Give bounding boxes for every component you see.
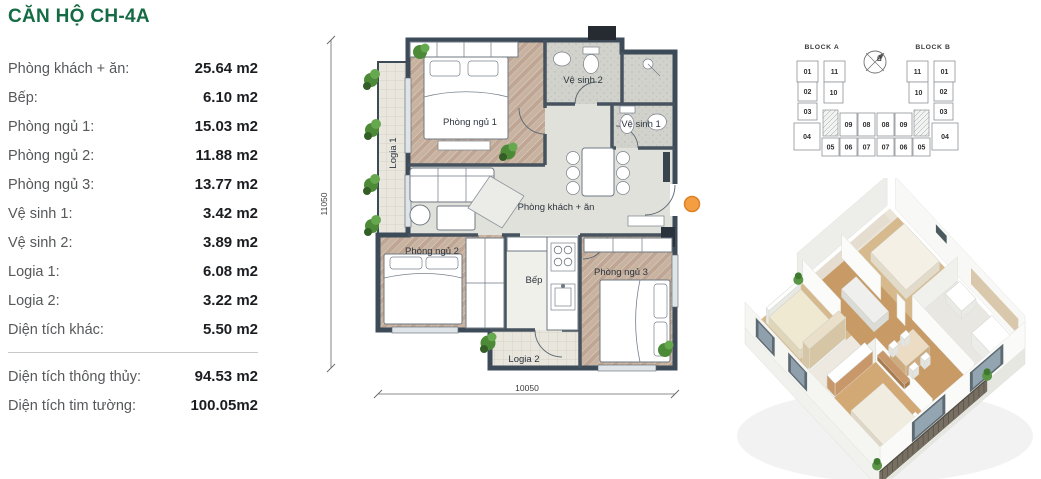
label-logia2: Logia 2 (508, 354, 539, 365)
kitchen-counter-top (507, 237, 547, 251)
svg-text:06: 06 (900, 145, 908, 152)
area-value: 5.50 m2 (203, 321, 258, 338)
dining-chair (567, 152, 580, 165)
core-b (914, 110, 929, 136)
svg-text:06: 06 (845, 145, 853, 152)
block-b-units: 11 01 10 02 03 08 09 04 07 06 05 (877, 61, 958, 156)
area-value: 15.03 m2 (195, 118, 258, 135)
pouf (410, 205, 430, 225)
svg-text:11: 11 (914, 69, 922, 76)
dining-chair (617, 167, 630, 180)
area-label: Phòng ngủ 2: (8, 148, 94, 164)
pillow (390, 257, 422, 269)
svg-text:02: 02 (940, 89, 948, 96)
area-value: 3.42 m2 (203, 205, 258, 222)
area-row-bedroom2: Phòng ngủ 2:11.88 m2 (8, 141, 258, 170)
dimension-height: 11050 (319, 36, 335, 372)
svg-text:09: 09 (845, 122, 853, 129)
area-row-kitchen: Bếp:6.10 m2 (8, 83, 258, 112)
area-value: 25.64 m2 (195, 60, 258, 77)
total-row-gross: Diện tích tim tường:100.05m2 (8, 391, 258, 420)
shaft-block (588, 26, 616, 40)
block-b-label: BLOCK B (915, 44, 950, 51)
label-wc2: Vệ sinh 2 (563, 75, 603, 86)
wc2-sink (554, 52, 571, 66)
label-logia1: Logia 1 (388, 137, 399, 168)
svg-text:05: 05 (918, 145, 926, 152)
label-wc1: Vệ sinh 1 (621, 119, 661, 130)
svg-text:01: 01 (804, 69, 812, 76)
area-value: 6.08 m2 (203, 263, 258, 280)
wardrobe-bedroom3 (584, 238, 672, 252)
block-a-label: BLOCK A (805, 44, 840, 51)
area-row-other: Diện tích khác:5.50 m2 (8, 315, 258, 344)
shoe-cabinet (628, 216, 664, 226)
svg-text:04: 04 (941, 134, 949, 141)
area-list: Phòng khách + ăn:25.64 m2 Bếp:6.10 m2 Ph… (8, 54, 258, 344)
svg-text:08: 08 (882, 122, 890, 129)
svg-text:07: 07 (863, 145, 871, 152)
area-label: Diện tích khác: (8, 322, 104, 338)
area-label: Phòng ngủ 1: (8, 119, 94, 135)
total-value: 100.05m2 (190, 397, 258, 414)
faucet (561, 284, 565, 288)
svg-text:08: 08 (863, 122, 871, 129)
bed1-bench (438, 141, 490, 150)
pillow (654, 284, 667, 318)
svg-text:04: 04 (803, 134, 811, 141)
total-label: Diện tích thông thủy: (8, 369, 141, 385)
svg-text:10050: 10050 (515, 383, 539, 393)
svg-text:10: 10 (830, 90, 838, 97)
area-row-logia1: Logia 1:6.08 m2 (8, 257, 258, 286)
wc2-toilet (584, 55, 599, 74)
pillow (468, 61, 498, 76)
label-bedroom3: Phòng ngủ 3 (594, 267, 648, 278)
dining-chair (567, 167, 580, 180)
area-value: 13.77 m2 (195, 176, 258, 193)
svg-text:11050: 11050 (319, 192, 329, 215)
svg-text:07: 07 (882, 145, 890, 152)
entry-marker (685, 197, 700, 212)
wc2-toilet-tank (583, 47, 599, 54)
svg-text:01: 01 (941, 69, 949, 76)
svg-text:05: 05 (827, 145, 835, 152)
area-label: Phòng khách + ăn: (8, 61, 129, 77)
pillow (430, 61, 460, 76)
apartment-detail-page: CĂN HỘ CH-4A Phòng khách + ăn:25.64 m2 B… (0, 0, 1041, 479)
block-a-units: 01 11 02 10 03 04 09 08 05 06 07 (794, 61, 875, 156)
window-bedroom3-side (672, 255, 678, 307)
area-value: 11.88 m2 (195, 147, 258, 164)
area-row-wc2: Vệ sinh 2:3.89 m2 (8, 228, 258, 257)
window-bedroom1 (405, 78, 411, 153)
area-totals: Diện tích thông thủy:94.53 m2 Diện tích … (8, 362, 258, 420)
wc1-toilet-tank (620, 106, 635, 113)
area-label: Logia 1: (8, 264, 60, 280)
total-row-carpet: Diện tích thông thủy:94.53 m2 (8, 362, 258, 391)
dining-chair (567, 182, 580, 195)
block-key-plan: BLOCK A BLOCK B B 01 11 02 10 03 04 09 0… (775, 36, 975, 168)
area-row-bedroom3: Phòng ngủ 3:13.77 m2 (8, 170, 258, 199)
area-label: Logia 2: (8, 293, 60, 309)
dining-chair (617, 182, 630, 195)
area-label: Vệ sinh 1: (8, 206, 73, 222)
svg-text:03: 03 (940, 109, 948, 116)
area-label: Phòng ngủ 3: (8, 177, 94, 193)
area-value: 3.22 m2 (203, 292, 258, 309)
svg-text:03: 03 (804, 109, 812, 116)
dining-chair (617, 152, 630, 165)
area-row-living: Phòng khách + ăn:25.64 m2 (8, 54, 258, 83)
svg-text:02: 02 (804, 89, 812, 96)
page-title: CĂN HỘ CH-4A (8, 6, 150, 28)
svg-text:10: 10 (915, 90, 923, 97)
svg-text:11: 11 (831, 69, 839, 76)
area-label: Vệ sinh 2: (8, 235, 73, 251)
window-bedroom2 (392, 327, 458, 333)
core-a (823, 110, 838, 136)
entry-gap (670, 184, 681, 216)
label-living: Phòng khách + ăn (518, 202, 595, 213)
label-bedroom2: Phòng ngủ 2 (405, 246, 459, 257)
tv-unit (663, 152, 670, 182)
total-label: Diện tích tim tường: (8, 398, 136, 414)
area-row-bedroom1: Phòng ngủ 1:15.03 m2 (8, 112, 258, 141)
coffee-table (437, 206, 475, 230)
area-row-wc1: Vệ sinh 1:3.42 m2 (8, 199, 258, 228)
total-value: 94.53 m2 (195, 368, 258, 385)
label-bedroom1: Phòng ngủ 1 (443, 117, 497, 128)
floor-plan: Phòng ngủ 1 Vệ sinh 2 Vệ sinh 1 Phòng kh… (312, 20, 717, 404)
dimension-width: 10050 (374, 383, 679, 398)
area-value: 6.10 m2 (203, 89, 258, 106)
pillow (426, 257, 458, 269)
dining-table (582, 148, 614, 196)
compass-icon: B (864, 51, 886, 73)
divider (8, 352, 258, 353)
area-row-logia2: Logia 2:3.22 m2 (8, 286, 258, 315)
window-bedroom3 (598, 365, 656, 371)
area-value: 3.89 m2 (203, 234, 258, 251)
compass-north-label: B (877, 56, 882, 63)
area-label: Bếp: (8, 90, 38, 106)
apartment-3d-view (735, 178, 1041, 479)
label-kitchen: Bếp (526, 275, 543, 286)
svg-text:09: 09 (900, 122, 908, 129)
stove (551, 243, 575, 271)
